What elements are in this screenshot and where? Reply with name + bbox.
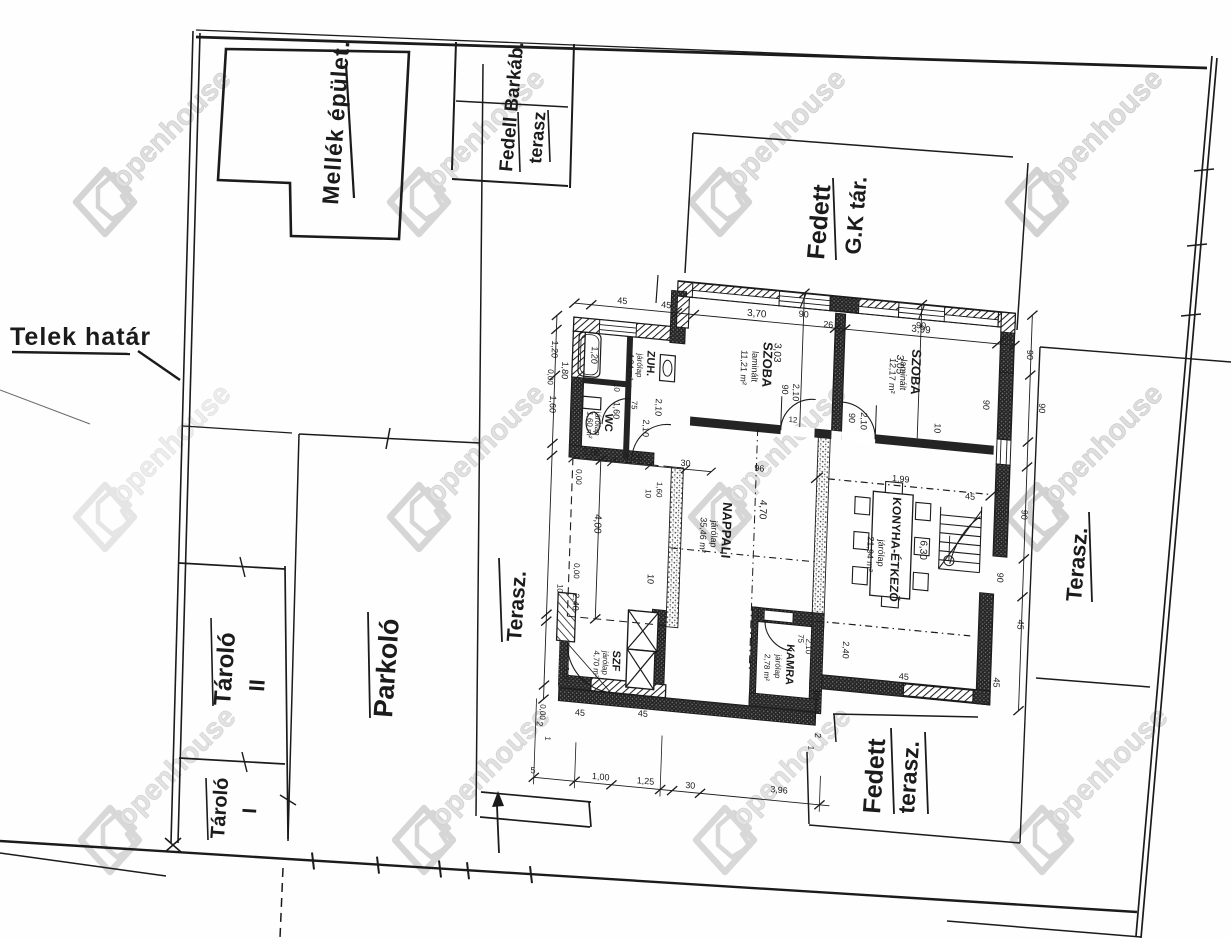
svg-text:0,00: 0,00 [572, 563, 582, 580]
svg-text:4,00: 4,00 [591, 514, 603, 535]
svg-text:4,70 m²: 4,70 m² [591, 650, 601, 678]
svg-text:12,17 m²: 12,17 m² [887, 358, 898, 394]
svg-text:SZOBA: SZOBA [759, 341, 776, 388]
svg-text:10: 10 [932, 423, 942, 434]
svg-text:2,10: 2,10 [641, 419, 652, 437]
svg-text:Telek határ: Telek határ [10, 323, 151, 351]
svg-text:2: 2 [813, 733, 823, 739]
svg-text:1,60: 1,60 [611, 401, 622, 419]
svg-text:KAMRA: KAMRA [783, 644, 796, 686]
svg-text:10: 10 [643, 489, 652, 499]
svg-text:3,70: 3,70 [747, 308, 767, 321]
svg-text:90: 90 [1037, 403, 1047, 414]
svg-text:1,20: 1,20 [589, 346, 600, 364]
svg-text:0,00: 0,00 [561, 666, 571, 683]
svg-text:terasz.: terasz. [893, 740, 924, 815]
svg-text:laminált: laminált [749, 351, 760, 383]
svg-text:1,00: 1,00 [583, 446, 601, 458]
svg-text:2,10: 2,10 [859, 412, 870, 430]
svg-text:6,30: 6,30 [917, 540, 929, 561]
svg-text:45: 45 [575, 707, 585, 718]
svg-text:45: 45 [638, 708, 648, 719]
svg-text:4,70: 4,70 [757, 499, 769, 520]
svg-text:1,60 m²: 1,60 m² [585, 411, 595, 439]
svg-text:90: 90 [1019, 509, 1029, 520]
svg-text:90: 90 [811, 690, 821, 701]
svg-text:ZUH.: ZUH. [644, 350, 657, 377]
svg-text:2,78 m²: 2,78 m² [762, 653, 772, 681]
svg-text:1,60: 1,60 [548, 395, 559, 413]
svg-text:75: 75 [630, 400, 639, 410]
svg-text:11,21 m²: 11,21 m² [738, 350, 749, 386]
svg-text:0,00: 0,00 [538, 704, 548, 721]
svg-text:1,00: 1,00 [592, 771, 610, 783]
svg-text:járólap: járólap [709, 519, 720, 548]
svg-text:45: 45 [617, 295, 627, 306]
svg-text:45: 45 [661, 299, 671, 310]
svg-text:10: 10 [612, 383, 621, 393]
svg-text:4,94 m²: 4,94 m² [626, 353, 636, 381]
svg-text:90: 90 [847, 413, 857, 424]
svg-text:45: 45 [991, 677, 1001, 688]
svg-text:30: 30 [680, 458, 690, 469]
svg-text:1,99: 1,99 [892, 473, 910, 485]
svg-text:0,00: 0,00 [574, 469, 584, 486]
svg-text:járólap: járólap [773, 653, 783, 679]
svg-text:35,46 m²: 35,46 m² [697, 517, 708, 553]
svg-text:2,10: 2,10 [791, 383, 802, 401]
svg-text:2,40: 2,40 [841, 641, 852, 659]
svg-text:Tároló: Tároló [209, 631, 241, 706]
svg-text:2,10: 2,10 [653, 398, 664, 416]
svg-text:45: 45 [965, 491, 975, 502]
svg-text:90: 90 [799, 309, 809, 320]
svg-text:30: 30 [685, 780, 695, 791]
svg-text:II: II [244, 678, 270, 692]
svg-text:1,25: 1,25 [637, 775, 655, 787]
svg-text:járólap: járólap [876, 538, 887, 567]
svg-text:SZOBA: SZOBA [908, 349, 925, 396]
svg-text:96: 96 [754, 463, 764, 474]
svg-text:3,96: 3,96 [770, 784, 788, 796]
svg-text:90: 90 [1025, 349, 1035, 360]
svg-text:10: 10 [645, 574, 655, 585]
svg-text:90: 90 [981, 399, 991, 410]
svg-text:Tároló: Tároló [207, 777, 233, 840]
svg-text:45: 45 [899, 671, 909, 682]
svg-text:1,60: 1,60 [654, 481, 664, 498]
svg-text:26: 26 [823, 319, 833, 330]
svg-text:1,25: 1,25 [625, 451, 643, 463]
svg-text:90: 90 [995, 572, 1005, 583]
svg-text:2: 2 [535, 721, 545, 727]
svg-text:laminált: laminált [898, 359, 909, 391]
svg-text:5: 5 [530, 765, 535, 775]
svg-text:2,40: 2,40 [571, 593, 582, 611]
svg-text:NAPPALI: NAPPALI [718, 502, 735, 559]
svg-text:45: 45 [1001, 332, 1011, 343]
svg-text:21,94 m²: 21,94 m² [865, 536, 876, 572]
svg-text:0,00: 0,00 [546, 369, 556, 386]
svg-text:1,20: 1,20 [549, 340, 560, 358]
svg-text:12: 12 [788, 415, 798, 425]
svg-text:75: 75 [796, 634, 805, 644]
svg-text:1,80: 1,80 [560, 361, 571, 379]
svg-text:Fedett: Fedett [858, 737, 891, 814]
svg-text:2,10: 2,10 [804, 638, 814, 655]
svg-text:SZF: SZF [609, 650, 622, 672]
svg-text:45: 45 [1015, 619, 1025, 630]
svg-text:90: 90 [916, 320, 926, 331]
svg-text:10: 10 [555, 584, 564, 594]
svg-text:90: 90 [780, 384, 790, 395]
